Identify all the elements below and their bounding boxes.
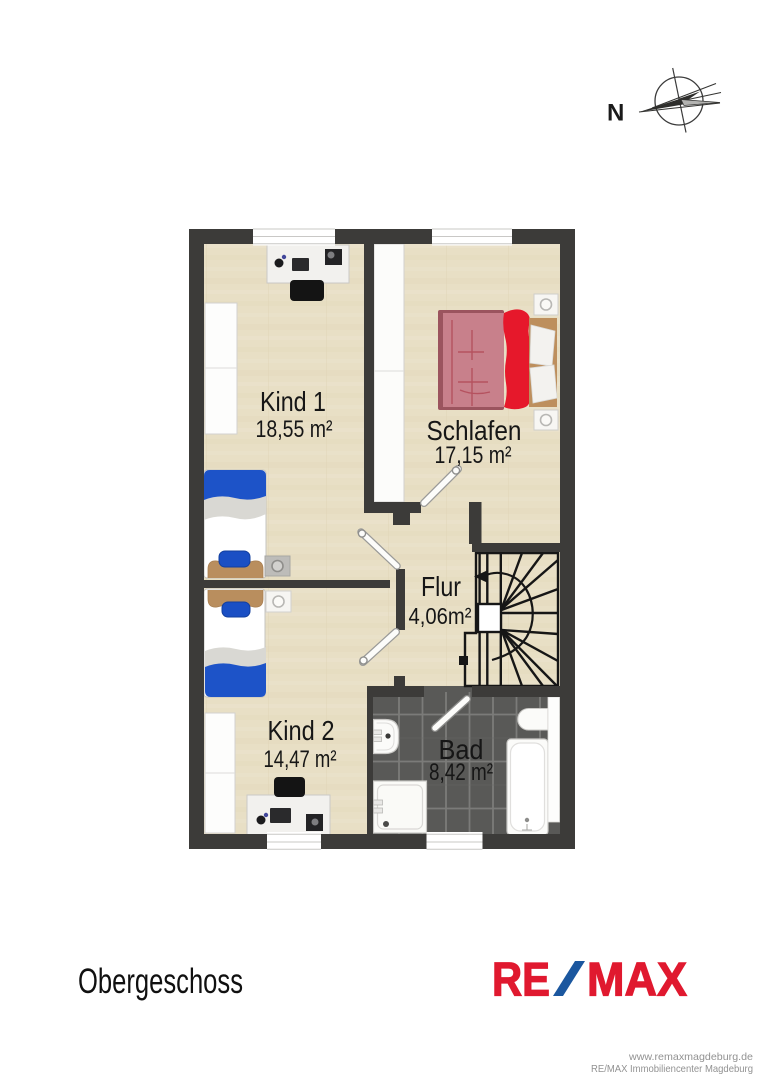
svg-text:RE/MAX Immobiliencenter Magdeb: RE/MAX Immobiliencenter Magdeburg	[591, 1063, 753, 1075]
svg-text:Kind 2: Kind 2	[268, 715, 335, 746]
svg-text:4,06m²: 4,06m²	[409, 603, 472, 629]
svg-text:Kind 1: Kind 1	[260, 386, 326, 417]
svg-text:17,15 m²: 17,15 m²	[435, 442, 512, 469]
svg-text:18,55 m²: 18,55 m²	[256, 416, 333, 443]
svg-text:14,47 m²: 14,47 m²	[264, 746, 337, 773]
svg-text:MAX: MAX	[587, 953, 687, 1006]
svg-text:www.remaxmagdeburg.de: www.remaxmagdeburg.de	[628, 1051, 753, 1063]
svg-text:RE: RE	[492, 953, 550, 1006]
svg-text:8,42 m²: 8,42 m²	[429, 759, 493, 786]
svg-text:Obergeschoss: Obergeschoss	[78, 962, 243, 1001]
svg-text:Flur: Flur	[421, 571, 461, 602]
svg-text:N: N	[607, 100, 624, 127]
